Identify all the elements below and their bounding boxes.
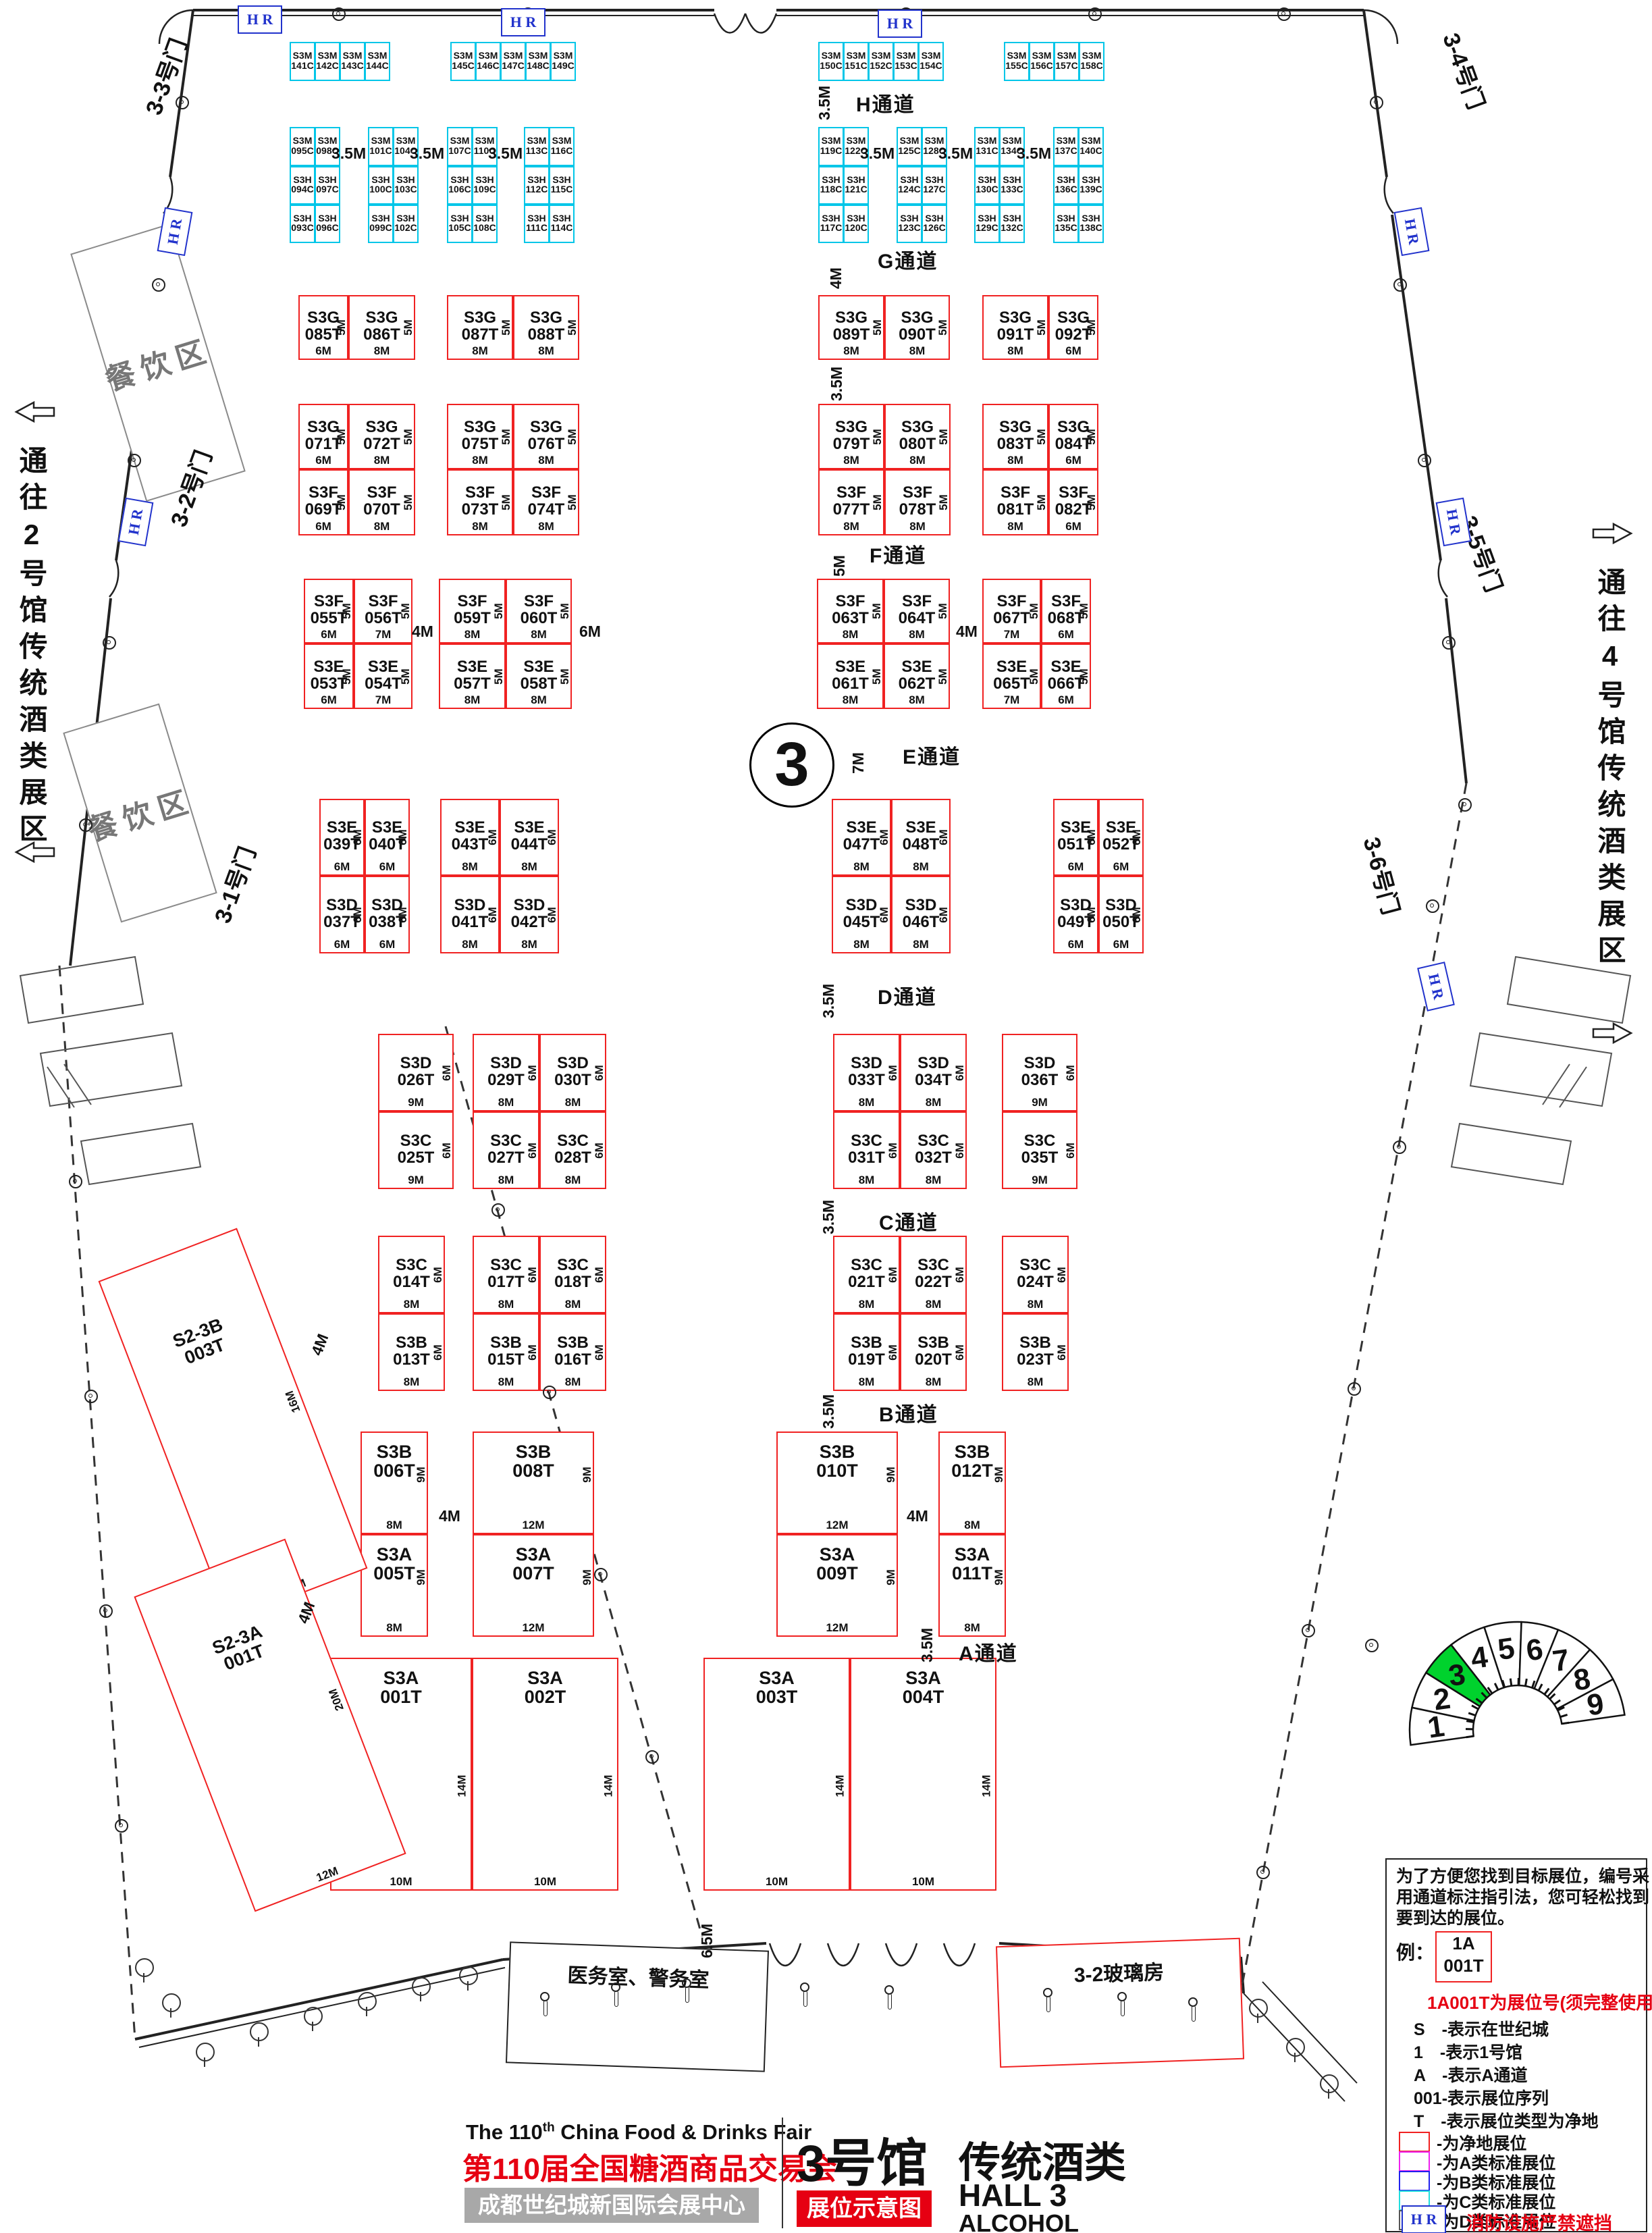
booth-S3M-143C: S3M143C [340, 42, 365, 81]
booth-S3D-030T: S3D030T6M8M [539, 1034, 606, 1111]
aisle-label-E: E通道 [903, 740, 961, 770]
booth-depth-label: 5M [335, 494, 348, 510]
booth-S3C-014T: S3C014T6M8M [378, 1236, 445, 1313]
booth-S3H-117C: S3H117C [818, 205, 844, 243]
booth-label: S3H114C [550, 213, 573, 233]
plan-tag: 展位示意图 [797, 2190, 932, 2227]
booth-label: S3M147C [502, 51, 525, 70]
booth-label: S3M156C [1030, 51, 1053, 70]
booth-S3A-004T: S3A004T14M10M [850, 1658, 996, 1891]
booth-S3B-008T: S3B008T9M12M [473, 1431, 594, 1534]
booth-depth-label: 5M [399, 603, 412, 619]
booth-label: S3H111C [525, 213, 548, 233]
booth-width-label: 8M [892, 860, 949, 874]
booth-label: S3M150C [820, 51, 843, 70]
booth-S3E-053T: S3E053T5M6M [304, 643, 354, 709]
booth-depth-label: 6M [431, 1344, 445, 1361]
booth-label: S3H102C [394, 213, 417, 233]
fan-tick [1562, 1723, 1569, 1724]
booth-width-label: 6M [1055, 860, 1097, 874]
booth-S3E-057T: S3E057T5M8M [439, 643, 506, 709]
column-icon [103, 636, 116, 650]
booth-label: S3M153C [895, 51, 917, 70]
booth-S3F-081T: S3F081T5M8M [982, 469, 1048, 535]
booth-depth-label: 5M [936, 603, 950, 619]
legend-item: 1 -表示1号馆 [1414, 2039, 1522, 2064]
dim-label: 3.5M [820, 1200, 838, 1234]
hr-marker: H R [1402, 2205, 1446, 2233]
corridor-text-left: 通往2号馆传统酒类展区 [11, 446, 52, 850]
booth-S3A-009T: S3A009T9M12M [776, 1534, 898, 1637]
booth-S3G-079T: S3G079T5M8M [818, 404, 884, 469]
booth-width-label: 6M [1042, 693, 1090, 707]
booth-S3D-033T: S3D033T6M8M [833, 1034, 900, 1111]
booth-depth-label: 6M [1085, 907, 1098, 923]
column-icon [1393, 278, 1407, 292]
booth-width-label: 8M [440, 628, 504, 641]
booth-depth-label: 5M [500, 429, 513, 445]
booth-depth-label: 9M [884, 1569, 898, 1585]
aisle-label-F: F通道 [870, 539, 926, 569]
booth-width-label: 8M [886, 344, 949, 358]
booth-width-label: 8M [448, 344, 512, 358]
booth-S3M-150C: S3M150C [818, 42, 844, 81]
booth-depth-label: 9M [581, 1569, 594, 1585]
booth-depth-label: 6M [545, 907, 559, 923]
dim-label: 3.5M [820, 984, 838, 1018]
bollard-icon [540, 1992, 550, 2001]
booth-width-label: 8M [474, 1298, 538, 1311]
booth-width-label: 8M [834, 1298, 899, 1311]
booth-depth-label: 6M [351, 829, 365, 845]
booth-S3E-048T: S3E048T6M8M [891, 799, 951, 876]
booth-S3M-155C: S3M155C [1004, 42, 1030, 81]
booth-width-label: 8M [350, 344, 414, 358]
booth-S3A-007T: S3A007T9M12M [473, 1534, 594, 1637]
booth-depth-label: 5M [1035, 319, 1048, 336]
booth-width-label: 8M [442, 860, 498, 874]
booth-depth-label: 5M [402, 429, 415, 445]
tree-icon [162, 1993, 181, 2012]
bollard-icon [884, 1985, 894, 1995]
hall-number-circle: 3 [749, 723, 834, 808]
hr-marker: H R [238, 5, 282, 34]
booth-label: S3H123C [898, 213, 921, 233]
booth-width-label: 7M [984, 693, 1040, 707]
booth-S3M-142C: S3M142C [315, 42, 340, 81]
booth-S3H-127C: S3H127C [922, 166, 947, 205]
booth-width-label: 8M [901, 1174, 965, 1187]
dim-label: 3.5M [860, 145, 895, 163]
booth-width-label: 6M [1042, 628, 1090, 641]
booth-depth-label: 9M [581, 1467, 594, 1483]
booth-label: S3M152C [870, 51, 892, 70]
booth-S3H-115C: S3H115C [549, 166, 575, 205]
booth-width-label: 6M [366, 938, 408, 951]
booth-S3D-037T: S3D037T6M6M [319, 876, 365, 953]
booth-S3F-078T: S3F078T5M8M [884, 469, 951, 535]
booth-label: S3H126C [923, 213, 946, 233]
booth-S3M-119C: S3M119C [818, 127, 844, 166]
booth-width-label: 8M [362, 1519, 427, 1532]
booth-S3D-041T: S3D041T6M8M [440, 876, 500, 953]
booth-S3F-060T: S3F060T5M8M [506, 579, 572, 643]
aisle-label-A: A通道 [959, 1637, 1018, 1666]
booth-S3G-075T: S3G075T5M8M [447, 404, 513, 469]
booth-width-label: 8M [474, 1375, 538, 1389]
booth-S3H-129C: S3H129C [974, 205, 1000, 243]
fan-tick [1510, 1679, 1512, 1686]
booth-width-label: 8M [820, 520, 883, 533]
dim-label: 4M [412, 623, 433, 641]
bollard-icon [611, 1982, 620, 1992]
booth-depth-label: 5M [1085, 494, 1098, 510]
booth-width-label: 6M [321, 938, 363, 951]
booth-label: S3M148C [527, 51, 550, 70]
bollard-icon [1188, 1997, 1198, 2007]
booth-S3M-154C: S3M154C [918, 42, 944, 81]
booth-S3G-089T: S3G089T5M8M [818, 295, 884, 360]
booth-label: S3H096C [316, 213, 339, 233]
booth-width-label: 9M [1003, 1174, 1076, 1187]
booth-label: S3M144C [366, 51, 389, 70]
column-icon [99, 1604, 113, 1618]
column-icon [84, 1390, 98, 1403]
legend-item: 001-表示展位序列 [1414, 2085, 1549, 2109]
booth-width-label: 9M [1003, 1096, 1076, 1109]
booth-depth-label: 5M [871, 429, 884, 445]
booth-S3M-131C: S3M131C [974, 127, 1000, 166]
booth-S3D-034T: S3D034T6M8M [900, 1034, 967, 1111]
legend-item: S -表示在世纪城 [1414, 2016, 1549, 2041]
booth-depth-label: 6M [526, 1142, 539, 1159]
booth-S3M-157C: S3M157C [1054, 42, 1080, 81]
booth-S3E-047T: S3E047T6M8M [832, 799, 891, 876]
booth-label: S3A001T [331, 1669, 471, 1707]
booth-S3B-019T: S3B019T6M8M [833, 1313, 900, 1391]
booth-S3M-141C: S3M141C [290, 42, 315, 81]
booth-S3E-040T: S3E040T6M6M [365, 799, 410, 876]
booth-label: S3A009T [778, 1545, 897, 1583]
booth-S3H-124C: S3H124C [897, 166, 922, 205]
booth-S3H-099C: S3H099C [368, 205, 394, 243]
dim-label: 4M [439, 1507, 460, 1525]
legend-key-swatch [1399, 2132, 1430, 2152]
legend-item: T -表示展位类型为净地 [1414, 2108, 1599, 2132]
legend-note: 1A001T为展位号(须完整使用) [1427, 1989, 1652, 2014]
booth-depth-label: 5M [870, 668, 884, 685]
tree-icon [1286, 2038, 1305, 2057]
booth-label: S3M142C [316, 51, 339, 70]
booth-width-label: 12M [474, 1621, 593, 1635]
booth-depth-label: 5M [1028, 668, 1041, 685]
booth-depth-label: 5M [936, 668, 950, 685]
column-icon [543, 1386, 556, 1399]
booth-S3H-093C: S3H093C [290, 205, 315, 243]
booth-label: S3M137C [1055, 136, 1077, 155]
booth-S3H-123C: S3H123C [897, 205, 922, 243]
booth-label: S3H132C [1001, 213, 1023, 233]
booth-S3F-056T: S3F056T5M7M [354, 579, 412, 643]
booth-S3A-005T: S3A005T9M8M [361, 1534, 428, 1637]
booth-depth-label: 6M [953, 1142, 967, 1159]
booth-depth-label: 5M [340, 668, 354, 685]
booth-width-label: 8M [474, 1174, 538, 1187]
booth-depth-label: 6M [593, 1267, 606, 1283]
booth-width-label: 8M [984, 454, 1047, 467]
booth-width-label: 8M [886, 520, 949, 533]
booth-depth-label: 6M [526, 1065, 539, 1081]
booth-label: S3H124C [898, 175, 921, 194]
booth-width-label: 8M [818, 693, 882, 707]
dining-area-label: 餐饮区 [81, 777, 198, 850]
legend-paragraph-line: 要到达的展位。 [1396, 1908, 1514, 1929]
booth-S3M-140C: S3M140C [1078, 127, 1104, 166]
booth-depth-label: 6M [1130, 829, 1144, 845]
booth-depth-label: 14M [455, 1775, 469, 1797]
booth-S3E-062T: S3E062T5M8M [884, 643, 950, 709]
booth-label: S3H103C [394, 175, 417, 194]
booth-S3G-091T: S3G091T5M8M [982, 295, 1048, 360]
booth-S3B-013T: S3B013T6M8M [378, 1313, 445, 1391]
booth-label: S3A007T [474, 1545, 593, 1583]
booth-depth-label: 6M [396, 829, 410, 845]
dim-label: 3.5M [820, 1394, 838, 1429]
booth-depth-label: 6M [486, 907, 500, 923]
booth-S3C-035T: S3C035T6M9M [1002, 1111, 1077, 1189]
booth-depth-label: 5M [937, 429, 951, 445]
booth-depth-label: 6M [593, 1344, 606, 1361]
column-icon [645, 1750, 659, 1764]
booth-label: S3H136C [1055, 175, 1077, 194]
booth-S3C-027T: S3C027T6M8M [473, 1111, 539, 1189]
booth-depth-label: 5M [500, 319, 513, 336]
booth-label: S3M101C [369, 136, 392, 155]
dim-label: 6.5M [698, 1924, 716, 1958]
booth-S3G-086T: S3G086T5M8M [348, 295, 415, 360]
booth-depth-label: 9M [884, 1467, 898, 1483]
booth-S3M-125C: S3M125C [897, 127, 922, 166]
booth-width-label: 8M [818, 628, 882, 641]
booth-S3C-024T: S3C024T6M8M [1002, 1236, 1069, 1313]
booth-S3H-120C: S3H120C [843, 205, 869, 243]
booth-S3F-082T: S3F082T5M6M [1048, 469, 1098, 535]
fair-title-cn: 第110届全国糖酒商品交易会 [462, 2145, 773, 2188]
booth-width-label: 8M [901, 1375, 965, 1389]
booth-S3B-015T: S3B015T6M8M [473, 1313, 539, 1391]
booth-depth-label: 5M [1028, 603, 1041, 619]
booth-S3E-051T: S3E051T6M6M [1053, 799, 1098, 876]
corridor-text-right: 通往4号馆传统酒类展区 [1589, 567, 1630, 972]
legend-key-swatch [1399, 2171, 1430, 2191]
booth-S3A-003T: S3A003T14M10M [703, 1658, 850, 1891]
booth-label: S3M095C [291, 136, 314, 155]
booth-S3M-146C: S3M146C [475, 42, 501, 81]
booth-depth-label: 6M [886, 1344, 900, 1361]
tree-icon [250, 2022, 269, 2041]
booth-width-label: 8M [834, 1375, 899, 1389]
booth-label: S3H129C [976, 213, 998, 233]
dim-label: 4M [827, 267, 845, 289]
booth-depth-label: 5M [1085, 429, 1098, 445]
dim-label: 7M [849, 752, 868, 774]
booth-width-label: 6M [1100, 938, 1142, 951]
booth-depth-label: 5M [937, 494, 951, 510]
aisle-label-B: B通道 [879, 1398, 938, 1427]
booth-S3H-121C: S3H121C [843, 166, 869, 205]
booth-width-label: 8M [940, 1621, 1005, 1635]
booth-S3G-085T: S3G085T5M6M [298, 295, 348, 360]
booth-S3H-097C: S3H097C [315, 166, 340, 205]
booth-width-label: 6M [1050, 454, 1097, 467]
booth-width-label: 8M [514, 520, 578, 533]
booth-S3G-088T: S3G088T5M8M [513, 295, 579, 360]
booth-width-label: 8M [514, 344, 578, 358]
booth-width-label: 8M [379, 1298, 444, 1311]
booth-width-label: 8M [833, 938, 890, 951]
booth-S3M-148C: S3M148C [525, 42, 551, 81]
booth-depth-label: 6M [953, 1267, 967, 1283]
booth-label: S3A002T [473, 1669, 617, 1707]
booth-width-label: 8M [379, 1375, 444, 1389]
booth-S3M-137C: S3M137C [1053, 127, 1079, 166]
legend-example-label: 例： [1396, 1938, 1434, 1965]
booth-S3H-102C: S3H102C [393, 205, 419, 243]
booth-S3H-105C: S3H105C [447, 205, 473, 243]
booth-S3H-109C: S3H109C [472, 166, 498, 205]
booth-label: S3M145C [452, 51, 475, 70]
booth-label: S3H100C [369, 175, 392, 194]
legend-item: A -表示A通道 [1414, 2062, 1528, 2086]
booth-label: S3M146C [477, 51, 500, 70]
booth-S3E-058T: S3E058T5M8M [506, 643, 572, 709]
dim-label: 3.5M [816, 86, 834, 120]
booth-width-label: 6M [305, 693, 352, 707]
booth-label: S3H121C [845, 175, 868, 194]
column-icon [1393, 1140, 1406, 1154]
booth-depth-label: 6M [1055, 1267, 1069, 1283]
booth-depth-label: 5M [340, 603, 354, 619]
booth-S3H-133C: S3H133C [999, 166, 1025, 205]
booth-S3H-114C: S3H114C [549, 205, 575, 243]
booth-depth-label: 9M [415, 1467, 428, 1483]
booth-label: S3H099C [369, 213, 392, 233]
booth-S3F-064T: S3F064T5M8M [884, 579, 950, 643]
booth-S3D-029T: S3D029T6M8M [473, 1034, 539, 1111]
booth-width-label: 8M [448, 454, 512, 467]
booth-S3H-135C: S3H135C [1053, 205, 1079, 243]
booth-S3E-054T: S3E054T5M7M [354, 643, 412, 709]
booth-width-label: 8M [440, 693, 504, 707]
booth-label: S3M149C [552, 51, 575, 70]
booth-S3C-018T: S3C018T6M8M [539, 1236, 606, 1313]
hr-marker: H R [501, 8, 545, 36]
booth-S3F-059T: S3F059T5M8M [439, 579, 506, 643]
booth-label: S3H127C [923, 175, 946, 194]
booth-S3M-101C: S3M101C [368, 127, 394, 166]
dim-label: 4M [907, 1507, 928, 1525]
booth-depth-label: 6M [878, 907, 891, 923]
booth-width-label: 8M [501, 860, 558, 874]
booth-S3G-084T: S3G084T5M6M [1048, 404, 1098, 469]
hall-selector-fan: 123456789 [1395, 1608, 1625, 1747]
booth-label: S3H105C [448, 213, 471, 233]
booth-S3M-145C: S3M145C [450, 42, 476, 81]
booth-S3H-106C: S3H106C [447, 166, 473, 205]
dim-label: 3.5M [938, 145, 973, 163]
booth-depth-label: 6M [886, 1142, 900, 1159]
booth-width-label: 8M [940, 1519, 1005, 1532]
booth-S3D-045T: S3D045T6M8M [832, 876, 891, 953]
booth-width-label: 8M [501, 938, 558, 951]
column-icon [79, 818, 92, 832]
tree-icon [304, 2007, 323, 2026]
booth-depth-label: 14M [602, 1775, 615, 1797]
booth-S3D-050T: S3D050T6M6M [1098, 876, 1144, 953]
example-code-line: 1A [1437, 1933, 1491, 1955]
booth-label: S2-3B003T [126, 1298, 276, 1386]
hall-title-cn: 3号馆 [797, 2122, 928, 2196]
booth-depth-label: 5M [566, 429, 579, 445]
booth-label: S3M125C [898, 136, 921, 155]
booth-depth-label: 5M [1077, 668, 1091, 685]
column-icon [176, 96, 189, 109]
booth-depth-label: 5M [399, 668, 412, 685]
booth-width-label: 8M [507, 693, 570, 707]
booth-S3A-011T: S3A011T9M8M [938, 1534, 1006, 1637]
booth-S3M-116C: S3M116C [549, 127, 575, 166]
booth-label: S3H112C [525, 175, 548, 194]
booth-S3F-063T: S3F063T5M8M [817, 579, 884, 643]
column-icon [1348, 1382, 1361, 1396]
booth-depth-label: 6M [593, 1065, 606, 1081]
column-icon [332, 7, 346, 21]
booth-width-label: 10M [331, 1875, 471, 1889]
booth-depth-label: 6M [878, 829, 891, 845]
booth-S3B-010T: S3B010T9M12M [776, 1431, 898, 1534]
tree-icon [358, 1992, 377, 2011]
booth-width-label: 8M [984, 344, 1047, 358]
booth-depth-label: 5M [1085, 319, 1098, 336]
booth-S3E-061T: S3E061T5M8M [817, 643, 884, 709]
booth-S3G-076T: S3G076T5M8M [513, 404, 579, 469]
booth-S3C-032T: S3C032T6M8M [900, 1111, 967, 1189]
booth-width-label: 7M [355, 693, 411, 707]
booth-S3G-090T: S3G090T5M8M [884, 295, 950, 360]
booth-S3G-083T: S3G083T5M8M [982, 404, 1048, 469]
bollard-icon [800, 1982, 809, 1992]
booth-S3C-022T: S3C022T6M8M [900, 1236, 967, 1313]
booth-width-label: 6M [305, 628, 352, 641]
booth-label: S3M141C [291, 51, 314, 70]
glass-room: 3-2玻璃房 [996, 1938, 1244, 2068]
booth-S3M-152C: S3M152C [868, 42, 894, 81]
booth-label: S3M157C [1055, 51, 1078, 70]
booth-depth-label: 5M [402, 319, 415, 336]
booth-width-label: 12M [778, 1621, 897, 1635]
booth-width-label: 8M [1003, 1375, 1067, 1389]
booth-depth-label: 20M [326, 1687, 347, 1712]
tree-icon [196, 2043, 215, 2061]
booth-label: S3H120C [845, 213, 868, 233]
bollard-icon [1043, 1988, 1053, 1997]
booth-width-label: 9M [379, 1174, 452, 1187]
booth-depth-label: 6M [1085, 829, 1098, 845]
booth-depth-label: 6M [1064, 1065, 1077, 1081]
booth-S3C-021T: S3C021T6M8M [833, 1236, 900, 1313]
booth-label: S3M116C [550, 136, 573, 155]
booth-depth-label: 5M [1035, 494, 1048, 510]
